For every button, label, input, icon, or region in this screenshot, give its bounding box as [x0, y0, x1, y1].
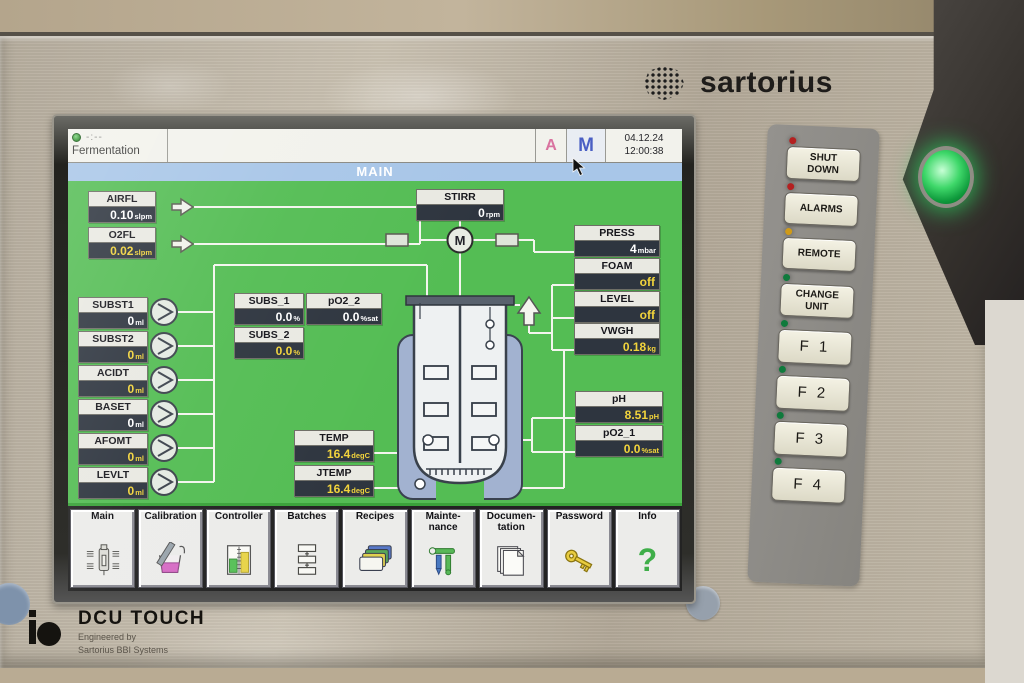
dcu-touch-logo: DCU TOUCH Engineered by Sartorius BBI Sy…	[26, 606, 205, 657]
auto-mode-button[interactable]: A	[535, 129, 566, 162]
sartorius-logo: sartorius	[644, 66, 833, 100]
param-value: 0.18	[623, 340, 646, 354]
menu-documentation-button[interactable]: Documen- tation	[479, 509, 544, 588]
menu-label: Mainte- nance	[426, 512, 461, 533]
param-unit: %sat	[641, 446, 659, 455]
param-afomt[interactable]: AFOMT 0ml	[78, 433, 148, 465]
param-label: BASET	[79, 400, 147, 414]
background-wall	[0, 0, 1024, 34]
sartorius-dots-icon	[644, 66, 684, 100]
param-label: TEMP	[295, 431, 373, 445]
stirrer-motor-icon[interactable]: M	[448, 228, 473, 253]
param-unit: slpm	[134, 212, 152, 221]
menu-password-button[interactable]: Password	[547, 509, 612, 588]
param-label: FOAM	[575, 259, 659, 273]
time-text: 12:00:38	[625, 146, 664, 159]
param-unit: degC	[351, 451, 370, 460]
f3-button[interactable]: F 3	[773, 421, 848, 458]
svg-text:M: M	[455, 233, 466, 248]
menu-label: Documen- tation	[487, 512, 536, 533]
param-value-row: 0.0%sat	[576, 440, 662, 456]
param-level[interactable]: LEVEL off	[574, 291, 660, 323]
io-logo-icon	[26, 606, 64, 650]
engineered-company-line: Sartorius BBI Systems	[78, 645, 205, 656]
device-name: DCU TOUCH	[78, 608, 205, 630]
param-value: 16.4	[327, 482, 350, 496]
maintenance-tools-icon	[424, 533, 462, 587]
date-text: 04.12.24	[625, 133, 664, 146]
calibration-beaker-icon	[152, 533, 190, 587]
param-value-row: 0ml	[79, 346, 147, 362]
param-label: PRESS	[575, 226, 659, 240]
sartorius-logo-text: sartorius	[700, 66, 833, 100]
f3-led	[777, 412, 784, 419]
param-label: LEVEL	[575, 292, 659, 306]
alarms-led	[787, 183, 794, 190]
f2-button[interactable]: F 2	[775, 375, 850, 412]
keypad-key-wrap: ALARMS	[783, 192, 858, 227]
param-unit: ml	[135, 318, 144, 327]
keypad-key-wrap: F 3	[773, 421, 848, 458]
password-key-icon	[560, 533, 598, 587]
f4-led	[775, 458, 782, 465]
keypad-key-wrap: REMOTE	[781, 237, 856, 272]
param-value-row: 0.10slpm	[89, 206, 155, 222]
param-label: JTEMP	[295, 466, 373, 480]
param-label: SUBS_2	[235, 328, 303, 342]
remote-button[interactable]: REMOTE	[781, 237, 856, 272]
menu-label: Info	[638, 512, 656, 533]
param-value-row: 0.0%sat	[307, 308, 381, 324]
param-o2fl[interactable]: O2FL 0.02slpm	[88, 227, 156, 259]
param-baset[interactable]: BASET 0ml	[78, 399, 148, 431]
param-unit: ml	[135, 386, 144, 395]
touchscreen[interactable]: -:-- Fermentation A M 04.12.24 12:00:38 …	[68, 129, 682, 591]
menu-label: Controller	[215, 512, 263, 533]
param-value-row: 16.4degC	[295, 445, 373, 461]
param-vwgh[interactable]: VWGH 0.18kg	[574, 323, 660, 355]
param-value: 0	[128, 484, 135, 498]
param-value-row: 0ml	[79, 482, 147, 498]
batches-flowchart-icon	[288, 533, 326, 587]
header-spacer	[168, 129, 535, 162]
menu-batches-button[interactable]: Batches	[274, 509, 339, 588]
background-right	[985, 300, 1024, 683]
param-po2-2[interactable]: pO2_2 0.0%sat	[306, 293, 382, 325]
param-airfl[interactable]: AIRFL 0.10slpm	[88, 191, 156, 223]
param-value: 0	[128, 348, 135, 362]
green-power-button[interactable]	[918, 146, 974, 208]
param-foam[interactable]: FOAM off	[574, 258, 660, 290]
param-value-row: 0ml	[79, 448, 147, 464]
param-unit: ml	[135, 420, 144, 429]
param-unit: pH	[649, 412, 659, 421]
membrane-keypad: SHUT DOWN ALARMS REMOTE CHANGE UNIT F 1 …	[747, 124, 880, 587]
param-label: ACIDT	[79, 366, 147, 380]
param-value: 0.10	[110, 208, 133, 222]
keypad-key-wrap: CHANGE UNIT	[779, 283, 854, 319]
change-unit-led	[783, 274, 790, 281]
param-unit: slpm	[134, 248, 152, 257]
menu-bar: Main	[68, 503, 682, 591]
param-value-row: 16.4degC	[295, 480, 373, 496]
param-value: 16.4	[327, 447, 350, 461]
pump-icons[interactable]	[151, 299, 177, 495]
param-unit: kg	[647, 344, 656, 353]
param-label: AFOMT	[79, 434, 147, 448]
param-jtemp[interactable]: JTEMP 16.4degC	[294, 465, 374, 497]
remote-led	[785, 228, 792, 235]
param-label: O2FL	[89, 228, 155, 242]
param-po2-1[interactable]: pO2_1 0.0%sat	[575, 425, 663, 457]
keypad-key-wrap: F 1	[777, 329, 852, 366]
param-value: 0.0	[624, 442, 641, 456]
param-unit: rpm	[486, 210, 500, 219]
param-value-row: off	[575, 306, 659, 322]
process-mimic: M AIRFL 0.10slpm	[68, 181, 682, 503]
param-value-row: off	[575, 273, 659, 289]
menu-label: Batches	[287, 512, 326, 533]
process-cell[interactable]: -:-- Fermentation	[68, 129, 168, 162]
f4-button[interactable]: F 4	[771, 467, 846, 504]
documentation-pages-icon	[492, 533, 530, 587]
param-value-row: 0.02slpm	[89, 242, 155, 258]
menu-controller-button[interactable]: Controller	[206, 509, 271, 588]
param-value: 0	[128, 416, 135, 430]
param-value: 0.0	[343, 310, 360, 324]
datetime-cell: 04.12.24 12:00:38	[605, 129, 682, 162]
menu-info-button[interactable]: Info ?	[615, 509, 680, 588]
process-status-icon	[72, 133, 81, 142]
menu-label: Calibration	[145, 512, 197, 533]
menu-label: Password	[556, 512, 603, 533]
controller-bars-icon	[220, 533, 258, 587]
f2-led	[779, 366, 786, 373]
keypad-key-wrap: SHUT DOWN	[786, 146, 861, 182]
param-label: STIRR	[417, 190, 503, 204]
page-title: MAIN	[68, 163, 682, 181]
param-unit: %	[293, 314, 300, 323]
keypad-key-wrap: F 4	[771, 467, 846, 504]
question-glyph: ?	[638, 544, 658, 576]
param-value: 4	[630, 242, 637, 256]
param-value: 8.51	[625, 408, 648, 422]
param-label: pH	[576, 392, 662, 406]
bioreactor-vessel	[398, 296, 522, 503]
gas-inlet-arrow-icons	[172, 199, 193, 252]
shutdown-led	[789, 137, 796, 144]
param-label: LEVLT	[79, 468, 147, 482]
shutdown-button[interactable]: SHUT DOWN	[786, 146, 861, 182]
param-value-row: 0ml	[79, 414, 147, 430]
menu-maintenance-button[interactable]: Mainte- nance	[411, 509, 476, 588]
process-timer: -:--	[86, 132, 103, 143]
param-press[interactable]: PRESS 4mbar	[574, 225, 660, 257]
change-unit-button[interactable]: CHANGE UNIT	[779, 283, 854, 319]
mouse-cursor-icon	[572, 157, 586, 177]
alarms-button[interactable]: ALARMS	[783, 192, 858, 227]
param-temp[interactable]: TEMP 16.4degC	[294, 430, 374, 462]
f1-led	[781, 320, 788, 327]
param-unit: ml	[135, 488, 144, 497]
param-value-row: 0ml	[79, 312, 147, 328]
param-value: 0	[478, 206, 485, 220]
param-value: 0.02	[110, 244, 133, 258]
param-value-row: 4mbar	[575, 240, 659, 256]
param-label: VWGH	[575, 324, 659, 338]
screen-header: -:-- Fermentation A M 04.12.24 12:00:38	[68, 129, 682, 163]
param-value: 0	[128, 450, 135, 464]
param-unit: mbar	[638, 246, 656, 255]
param-value-row: 0ml	[79, 380, 147, 396]
control-panel-photo: sartorius DCU TOUCH Engineered by Sartor…	[0, 0, 1024, 683]
param-value: 0	[128, 382, 135, 396]
menu-main-button[interactable]: Main	[70, 509, 135, 588]
param-unit: %sat	[360, 314, 378, 323]
param-unit: %	[293, 348, 300, 357]
menu-recipes-button[interactable]: Recipes	[342, 509, 407, 588]
param-label: pO2_2	[307, 294, 381, 308]
keypad-key-wrap: F 2	[775, 375, 850, 412]
param-unit: degC	[351, 486, 370, 495]
param-label: pO2_1	[576, 426, 662, 440]
process-name: Fermentation	[72, 145, 163, 157]
param-value-row: 0rpm	[417, 204, 503, 220]
param-ph[interactable]: pH 8.51pH	[575, 391, 663, 423]
param-value-row: 0.18kg	[575, 338, 659, 354]
param-value-row: 0.0%	[235, 342, 303, 358]
param-label: SUBST2	[79, 332, 147, 346]
param-stirr[interactable]: STIRR 0rpm	[416, 189, 504, 221]
exhaust-arrow-icon	[518, 297, 540, 325]
param-label: AIRFL	[89, 192, 155, 206]
screen-bezel: -:-- Fermentation A M 04.12.24 12:00:38 …	[52, 114, 696, 604]
param-value-row: 8.51pH	[576, 406, 662, 422]
param-unit: ml	[135, 454, 144, 463]
param-value-row: 0.0%	[235, 308, 303, 324]
recipes-folders-icon	[356, 533, 394, 587]
param-value: 0	[128, 314, 135, 328]
menu-label: Main	[91, 512, 114, 533]
param-unit: ml	[135, 352, 144, 361]
engineered-by-line: Engineered by	[78, 632, 205, 643]
info-question-icon: ?	[638, 533, 658, 587]
param-value: off	[640, 308, 655, 322]
fermenter-icon	[84, 533, 122, 587]
param-levlt[interactable]: LEVLT 0ml	[78, 467, 148, 499]
param-subst2[interactable]: SUBST2 0ml	[78, 331, 148, 363]
param-value: 0.0	[276, 310, 293, 324]
param-subs2[interactable]: SUBS_2 0.0%	[234, 327, 304, 359]
param-subst1[interactable]: SUBST1 0ml	[78, 297, 148, 329]
param-label: SUBS_1	[235, 294, 303, 308]
param-acidt[interactable]: ACIDT 0ml	[78, 365, 148, 397]
f1-button[interactable]: F 1	[777, 329, 852, 366]
param-value: 0.0	[276, 344, 293, 358]
menu-label: Recipes	[356, 512, 394, 533]
menu-calibration-button[interactable]: Calibration	[138, 509, 203, 588]
param-label: SUBST1	[79, 298, 147, 312]
param-subs1[interactable]: SUBS_1 0.0%	[234, 293, 304, 325]
param-value: off	[640, 275, 655, 289]
